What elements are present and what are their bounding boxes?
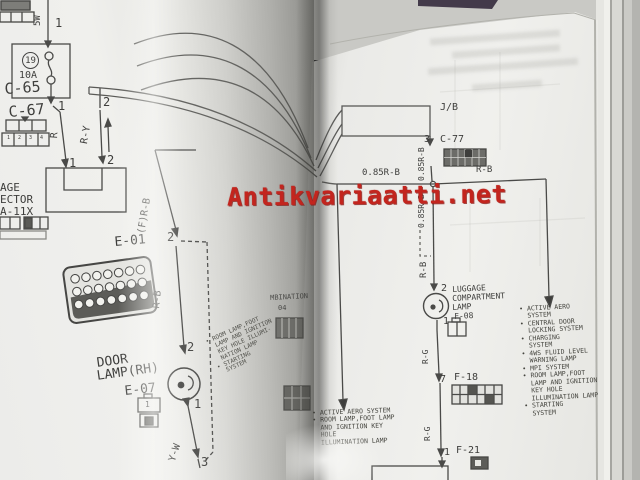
list-line: 1 [3, 136, 14, 141]
f18-pin-7: 7 [440, 375, 446, 385]
list-line: 2 [14, 136, 25, 141]
spine-fragment-number: 04 [278, 305, 286, 312]
f21-label: F-21 [456, 446, 480, 456]
wire-label-rg-upper: R-G [422, 350, 430, 364]
wire-yw [188, 406, 200, 468]
c67-pin-numbers: 1234 [3, 136, 47, 141]
luggage-lamp-symbol [424, 294, 449, 319]
right-system-list: • ACTIVE AERO SYSTEM• CENTRAL DOOR LOCKI… [519, 302, 599, 418]
luggage-pin-1: 1 [443, 317, 449, 327]
wire-label-rg-lower: R-G [424, 427, 432, 441]
luggage-pin-2: 2 [441, 284, 447, 294]
top-pin-1: 1 [58, 100, 65, 112]
watermark-text: Antikvariaatti.net [227, 180, 507, 212]
luggage-code: F-08 [454, 312, 474, 321]
wire-label-085rb-horizontal: 0.85R-B [362, 169, 400, 178]
bulb-rating: 5W [34, 15, 43, 26]
wire-label-085rb-top: 0.85R-B [418, 147, 426, 181]
doorlamp-pin-2: 2 [187, 341, 194, 353]
c67-connector-icon [2, 117, 49, 146]
cross-page-wires [89, 33, 317, 177]
doorlamp-pin-1: 1 [194, 398, 201, 410]
c65-pin-1: 1 [55, 17, 62, 29]
f21-pin-1: 1 [444, 448, 450, 458]
c65-connector-icon-cells [0, 1, 34, 22]
dashed-stub [420, 230, 431, 256]
wire-label-rb-left: R-B [152, 290, 164, 309]
f21-connector-icon [471, 457, 488, 469]
door-lamp-connector-icon [138, 394, 160, 427]
f18-connector-icon [452, 385, 502, 404]
top-pin-2: 2 [103, 96, 110, 108]
spine-connector-icons [276, 318, 310, 410]
connector-fragment-line3: A-11X [0, 206, 33, 217]
wire-label-rb-down: R-B [420, 262, 429, 278]
a11x-connector-icons [0, 217, 48, 239]
feed-wire [45, 0, 51, 47]
c77-connector-icon [444, 149, 486, 166]
list-line: 3 [25, 136, 36, 141]
f18-label: F-18 [454, 373, 478, 383]
fuse-rating: 10A [19, 71, 37, 81]
center-system-list: • ACTIVE AERO SYSTEM• ROOM LAMP,FOOT LAM… [312, 407, 395, 447]
wire-label-rb-right: R-B [476, 166, 492, 175]
end-pin-3: 3 [201, 456, 208, 468]
fuse-number: 19 [25, 56, 36, 66]
f21-component-box [372, 466, 448, 480]
list-line: 4 [36, 136, 47, 141]
frb-wire [155, 150, 196, 236]
doorlamp-code: E-07 [124, 382, 156, 398]
jb-label: J/B [440, 103, 458, 113]
a11x-component-box [46, 168, 126, 212]
mid-pin-2: 2 [107, 154, 114, 166]
connector-fragment-line1: AGE [0, 182, 20, 193]
mid-pin-1: 1 [69, 157, 76, 169]
e01-label: E-01 [114, 233, 146, 249]
c65-label: C-65 [4, 79, 41, 96]
e01-connector-pinout [63, 256, 158, 324]
c77-label: C-77 [440, 135, 464, 145]
wire-rb-left [176, 246, 186, 353]
e01-pin-2: 2 [167, 231, 174, 243]
c77-pin-3: 3 [424, 135, 430, 145]
main-wire-right [431, 187, 445, 467]
c67-label: C-67 [8, 102, 45, 120]
wire-label-r: R [50, 132, 60, 139]
connector-fragment-line2: ECTOR [0, 194, 33, 205]
book-photo: C-65 1 5W 19 10A C-67 1234 1 2 1 2 R R-Y… [0, 0, 640, 480]
fuse-number-circle: 19 [22, 52, 39, 69]
doorlamp-connector-pin: 1 [145, 401, 150, 409]
